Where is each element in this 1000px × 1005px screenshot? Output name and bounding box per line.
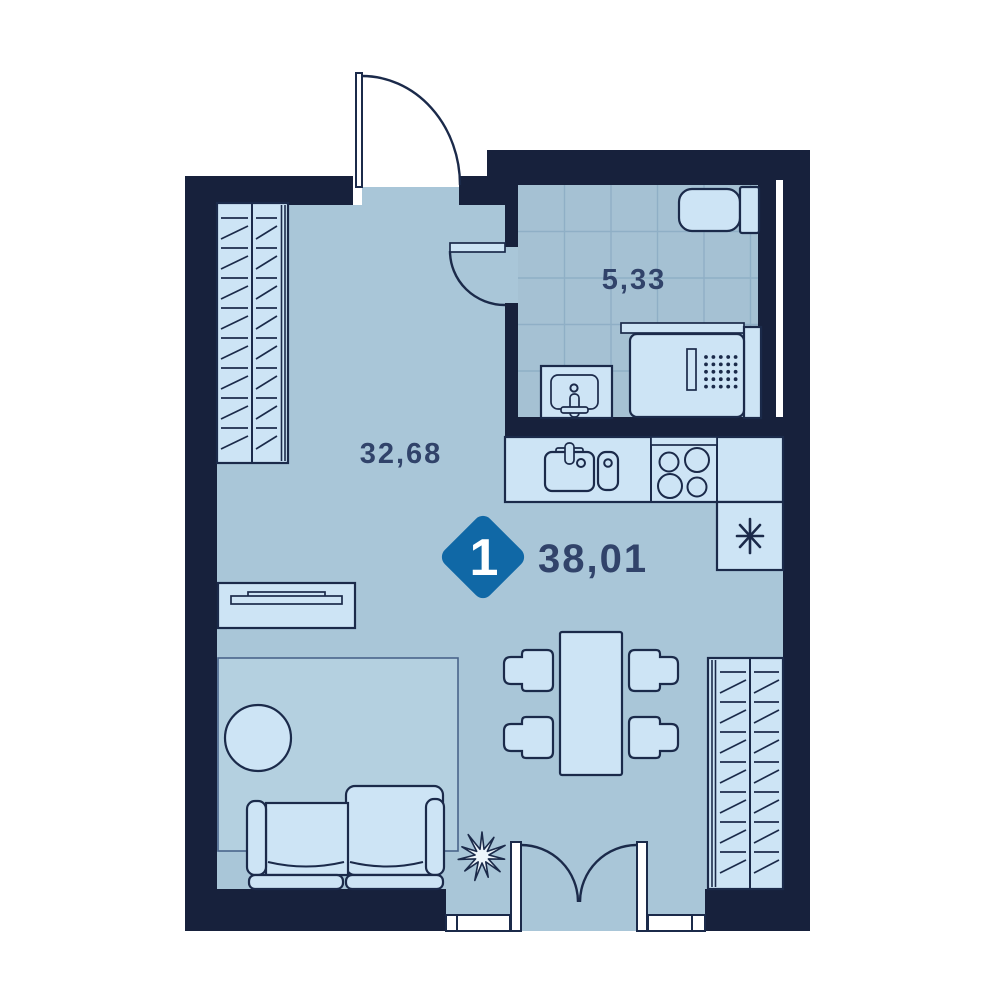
living-room-area-label: 32,68 [360, 438, 443, 470]
chair [504, 650, 553, 691]
floor-plan-canvas: 32,68 5,33 1 38,01 [0, 0, 1000, 1000]
snowflake-asterisk-icon [737, 519, 763, 553]
entrance-door [356, 73, 460, 187]
balcony-door-leaf [511, 842, 521, 931]
sofa-armrest-right [426, 799, 444, 875]
entrance-threshold [362, 187, 460, 207]
wall-bottom-left [185, 889, 446, 931]
washing-machine-icon [621, 323, 761, 418]
tv-stand [218, 583, 355, 628]
sofa-seat-cushion [346, 875, 443, 889]
wardrobe-right [708, 658, 783, 889]
dining-table [560, 632, 622, 775]
entrance-door-swing-arc [362, 76, 460, 185]
sofa-armrest-left [247, 801, 266, 875]
entrance-door-leaf [356, 73, 362, 187]
bathroom-wall-left-upper [505, 177, 518, 247]
rooms-count-number: 1 [470, 529, 499, 587]
chair [629, 650, 678, 691]
floor-plan-page: 32,68 5,33 1 38,01 [0, 0, 1000, 1000]
fridge-icon [717, 502, 783, 570]
total-area-label: 38,01 [538, 537, 648, 581]
wall-right-lower [783, 437, 810, 931]
wall-bottom-right [705, 889, 810, 931]
wall-left [185, 176, 217, 931]
bathroom-door-leaf [450, 243, 505, 252]
wardrobe-left [217, 203, 288, 463]
bathroom-area-label: 5,33 [602, 264, 666, 296]
chair [504, 717, 553, 758]
bathroom-wall-left-lower [505, 303, 518, 437]
sofa-seat-cushion [249, 875, 343, 889]
pouf [225, 705, 291, 771]
chair [629, 717, 678, 758]
wall-right-upper [758, 150, 810, 437]
toilet-icon [679, 187, 759, 233]
wall-duct-slot [776, 180, 783, 417]
washbasin-icon [541, 366, 612, 418]
balcony-door-leaf [637, 842, 647, 931]
bathroom-wall-bottom [505, 417, 783, 437]
